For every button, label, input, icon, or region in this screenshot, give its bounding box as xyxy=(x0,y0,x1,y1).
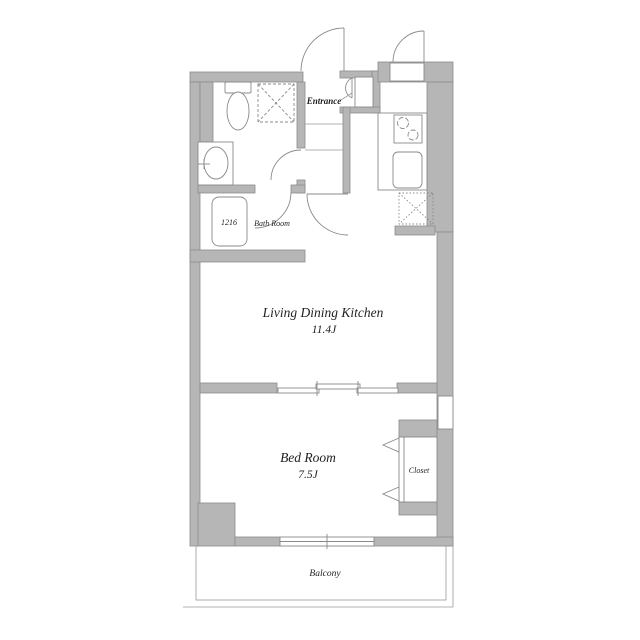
pipe-space-icon xyxy=(438,396,453,429)
wall-segment xyxy=(343,107,350,193)
wall-segment xyxy=(235,537,280,546)
ldk-door-arc xyxy=(307,194,348,235)
kitchen-counter xyxy=(378,113,427,190)
washing-machine-space-icon xyxy=(258,84,294,122)
floorplan-canvas: Entrance Bath Room 1216 Living Dining Ki… xyxy=(0,0,640,640)
wall-segment xyxy=(374,537,453,546)
bath-room-label: Bath Room xyxy=(254,219,290,228)
kitchen-sink-icon xyxy=(393,152,422,188)
wall-segment xyxy=(399,420,437,437)
sliding-panel xyxy=(316,384,360,389)
sliding-panel xyxy=(357,388,398,393)
ldk-size-label: 11.4J xyxy=(312,324,337,336)
folding-door-icon xyxy=(383,487,399,501)
wall-segment xyxy=(200,82,213,142)
sanitary-door-swing xyxy=(271,150,301,180)
wall-segment xyxy=(399,502,437,515)
toilet-bowl xyxy=(227,92,249,130)
entrance-label: Entrance xyxy=(306,96,342,106)
entrance-door-swing xyxy=(301,28,344,71)
entrance-label-leader xyxy=(341,93,352,100)
toilet-tank xyxy=(225,82,251,93)
wall-segment xyxy=(297,82,305,148)
bedroom-size-label: 7.5J xyxy=(298,469,318,481)
wall-segment xyxy=(198,185,255,193)
meter-box-door-swing xyxy=(393,31,424,62)
wall-segment xyxy=(190,250,305,262)
wall-segment xyxy=(291,185,305,193)
wall-segment xyxy=(395,226,435,235)
washbasin-icon xyxy=(198,142,233,185)
shoe-cabinet-icon xyxy=(355,77,373,107)
bedroom-label: Bed Room xyxy=(280,450,336,465)
wall-segment xyxy=(427,82,453,232)
wall-segment xyxy=(190,72,303,82)
floorplan-svg: Entrance Bath Room 1216 Living Dining Ki… xyxy=(0,0,640,640)
washbasin-bowl xyxy=(204,147,228,179)
sliding-panel xyxy=(278,388,319,393)
wall-segment xyxy=(200,383,277,393)
ldk-door-swing xyxy=(307,194,348,235)
wall-segment xyxy=(437,232,453,546)
balcony-label: Balcony xyxy=(309,569,341,579)
balcony-window-icon xyxy=(280,534,374,549)
bathtub-size-label: 1216 xyxy=(221,218,237,227)
wall-segment xyxy=(198,503,235,546)
folding-door-icon xyxy=(383,438,399,452)
ldk-label: Living Dining Kitchen xyxy=(262,305,384,320)
wall-segment xyxy=(397,383,437,393)
meter-box-icon xyxy=(390,63,424,81)
toilet-icon xyxy=(225,82,251,130)
closet-label: Closet xyxy=(409,466,430,475)
meter-box-door-arc xyxy=(393,31,424,62)
stove-icon xyxy=(394,115,422,143)
sliding-door-icon xyxy=(278,381,398,396)
entrance-door-arc xyxy=(301,28,344,71)
stove-top xyxy=(394,115,422,143)
